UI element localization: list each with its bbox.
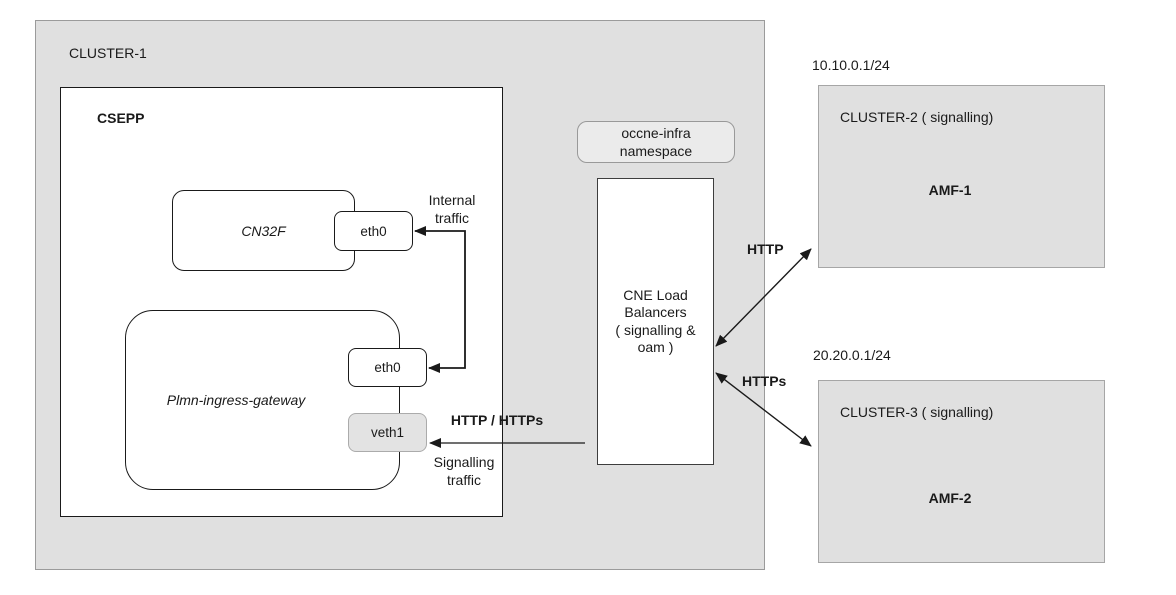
internal-traffic-label: Internal traffic bbox=[412, 192, 492, 227]
cluster2-label: CLUSTER-2 ( signalling) bbox=[840, 109, 993, 125]
https-flow-label: HTTPs bbox=[742, 373, 786, 389]
cn32f-node: CN32F bbox=[172, 190, 355, 271]
cn32f-eth0-interface: eth0 bbox=[334, 211, 413, 251]
amf1-node-label: AMF-1 bbox=[819, 182, 1081, 198]
gateway-veth1-interface: veth1 bbox=[348, 413, 427, 452]
gateway-veth1-label: veth1 bbox=[371, 425, 404, 440]
cluster1-label: CLUSTER-1 bbox=[69, 45, 147, 61]
cluster3-box: CLUSTER-3 ( signalling) AMF-2 bbox=[818, 380, 1105, 563]
signalling-traffic-label: Signalling traffic bbox=[424, 454, 504, 489]
network-diagram: CLUSTER-1 CSEPP CN32F eth0 Plmn-ingress-… bbox=[0, 0, 1176, 595]
cluster2-box: CLUSTER-2 ( signalling) AMF-1 bbox=[818, 85, 1105, 268]
amf2-node-label: AMF-2 bbox=[819, 490, 1081, 506]
cluster3-label: CLUSTER-3 ( signalling) bbox=[840, 404, 993, 420]
http-flow-label: HTTP bbox=[747, 241, 784, 257]
cn32f-eth0-label: eth0 bbox=[360, 224, 386, 239]
csepp-label: CSEPP bbox=[97, 110, 144, 126]
cn32f-label: CN32F bbox=[241, 223, 285, 239]
cluster3-subnet-label: 20.20.0.1/24 bbox=[813, 347, 891, 363]
gateway-eth0-interface: eth0 bbox=[348, 348, 427, 387]
http-https-label: HTTP / HTTPs bbox=[437, 412, 557, 430]
cluster2-subnet-label: 10.10.0.1/24 bbox=[812, 57, 890, 73]
occne-infra-namespace-badge: occne-infra namespace bbox=[577, 121, 735, 163]
plmn-ingress-gateway-label: Plmn-ingress-gateway bbox=[125, 392, 347, 408]
gateway-eth0-label: eth0 bbox=[374, 360, 400, 375]
cne-load-balancers-box: CNE Load Balancers ( signalling & oam ) bbox=[597, 178, 714, 465]
